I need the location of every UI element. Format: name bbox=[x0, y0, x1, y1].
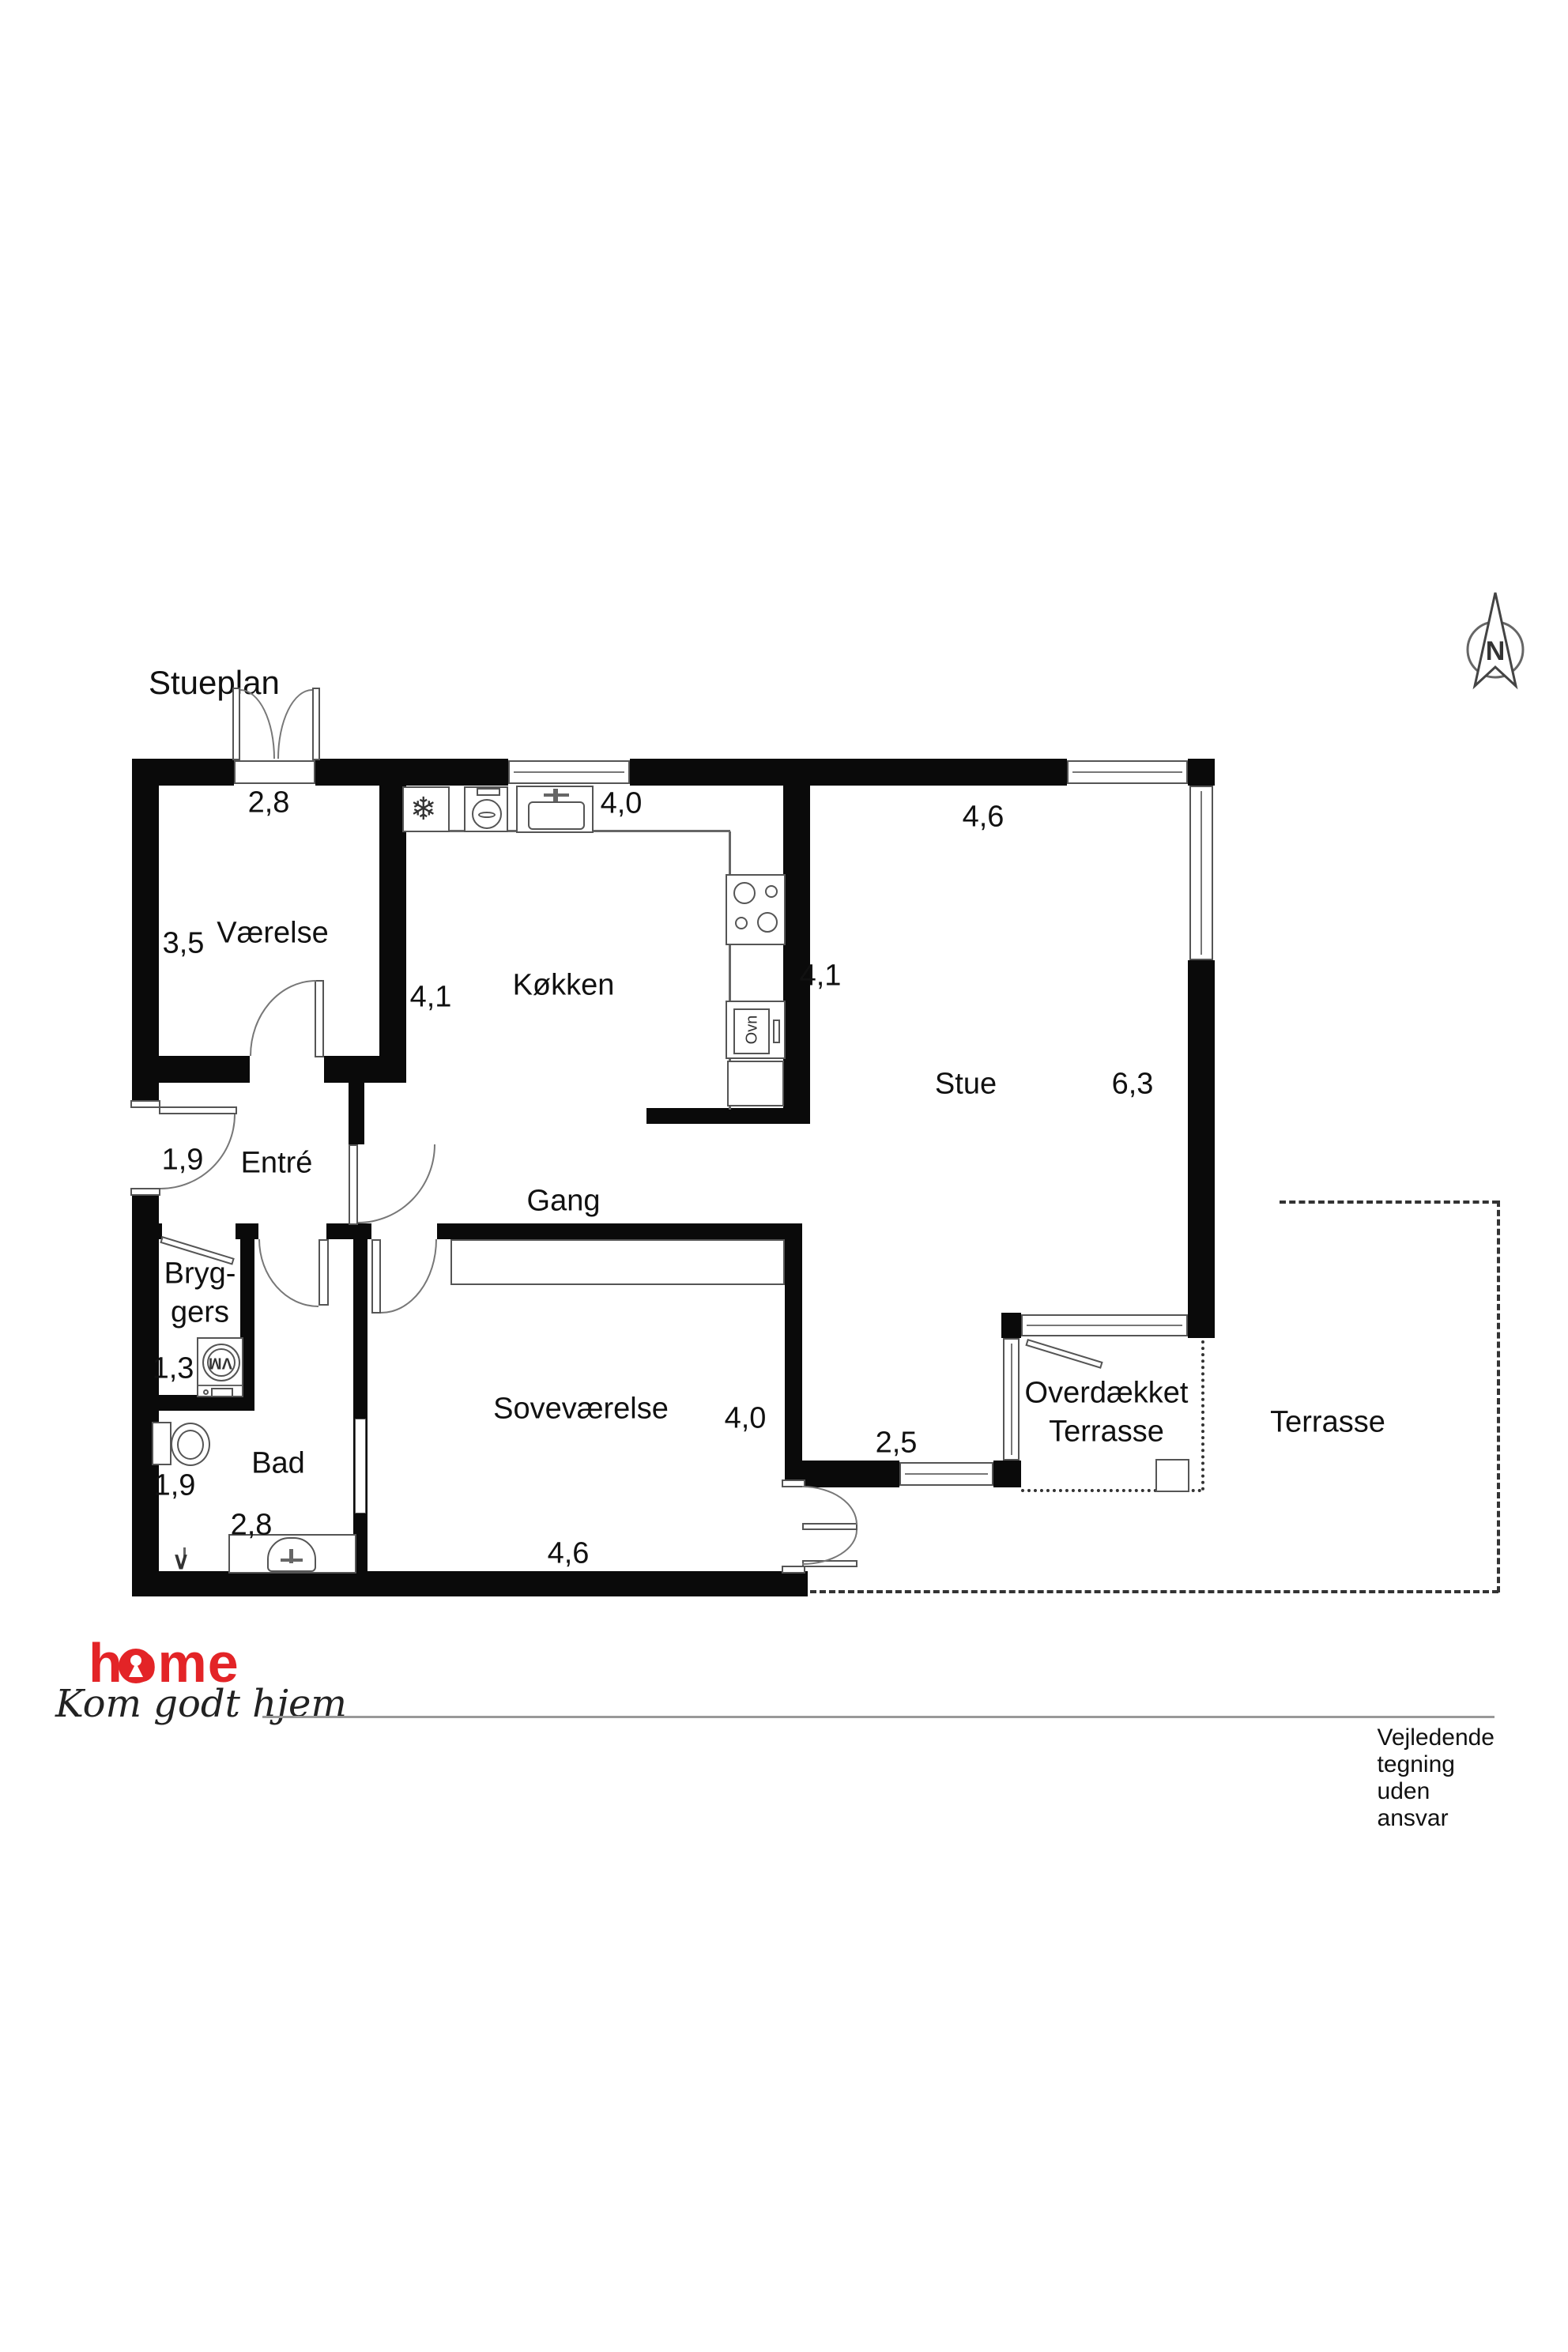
washing-machine: VM bbox=[197, 1337, 243, 1397]
room-label-overdaekket-2: Terrasse bbox=[1049, 1415, 1164, 1449]
washing-machine-knob bbox=[203, 1389, 209, 1395]
floor-drain-icon: ∨ bbox=[172, 1547, 190, 1575]
window-kitchen-top bbox=[508, 760, 630, 784]
front-door-gap bbox=[132, 1105, 159, 1193]
dim-sove-depth: 4,0 bbox=[725, 1402, 767, 1436]
room-label-vaerelse: Værelse bbox=[217, 917, 329, 951]
room-label-terrasse: Terrasse bbox=[1270, 1406, 1385, 1440]
bad-pocket-door bbox=[355, 1419, 366, 1513]
brand-tagline: Kom godt hjem bbox=[55, 1682, 347, 1726]
wall-gang-2 bbox=[236, 1223, 258, 1239]
terrace-door-leaf bbox=[1025, 1339, 1102, 1369]
oven: Ovn bbox=[726, 1001, 786, 1059]
wall-gang-1 bbox=[132, 1223, 162, 1239]
dim-bad-width: 1,9 bbox=[154, 1469, 196, 1503]
post-overdaekket-sw bbox=[993, 1461, 1021, 1487]
overdaekket-dotted-right bbox=[1201, 1340, 1204, 1491]
glass-door-stue-terrace bbox=[1021, 1314, 1188, 1336]
kitchen-counter-unit bbox=[727, 1061, 784, 1106]
page-title: Stueplan bbox=[149, 664, 280, 702]
dim-kokken-width: 4,0 bbox=[601, 787, 643, 821]
front-door-cap-bottom bbox=[130, 1188, 160, 1196]
toilet-tank bbox=[152, 1422, 171, 1465]
sink-faucet-bar bbox=[544, 793, 569, 797]
sove-door-arc bbox=[381, 1239, 437, 1314]
floorplan-page: Stueplan N bbox=[0, 0, 1568, 2352]
dim-entre-width: 1,9 bbox=[162, 1144, 204, 1178]
room-label-kokken: Køkken bbox=[513, 969, 615, 1003]
sink-basin bbox=[528, 801, 585, 830]
wall-top-right-corner bbox=[1188, 759, 1215, 786]
room-label-bryggers-2: gers bbox=[171, 1296, 229, 1330]
post-overdaekket-nw bbox=[1001, 1313, 1021, 1338]
window-passage bbox=[899, 1462, 993, 1486]
overdaekket-corner-post bbox=[1155, 1459, 1189, 1492]
north-label: N bbox=[1486, 636, 1506, 666]
vaerelse-door-arc bbox=[250, 980, 316, 1056]
basin-faucet-bar bbox=[281, 1559, 303, 1562]
dim-vaerelse-depth: 3,5 bbox=[163, 927, 205, 961]
dishwasher-pan-icon bbox=[478, 812, 496, 818]
double-door-arc-right bbox=[277, 689, 312, 759]
sove-door-leaf bbox=[371, 1239, 381, 1314]
wall-kitchen-stue-divider bbox=[783, 786, 810, 1124]
dishwasher bbox=[464, 786, 508, 832]
fridge: ❄ bbox=[402, 786, 450, 832]
burner-large-1 bbox=[733, 882, 756, 904]
room-label-sovevaerelse: Soveværelse bbox=[493, 1393, 669, 1427]
wall-gang-4 bbox=[437, 1223, 802, 1239]
dishwasher-panel bbox=[477, 788, 500, 796]
double-door-threshold bbox=[234, 760, 315, 784]
washing-machine-panel-line bbox=[198, 1385, 242, 1386]
footer-rule bbox=[262, 1716, 1494, 1718]
dim-passage-width: 2,5 bbox=[876, 1427, 918, 1461]
wall-vaerelse-bottom-right bbox=[324, 1056, 406, 1083]
bad-door-leaf bbox=[318, 1239, 329, 1306]
dim-kokken-depth-left: 4,1 bbox=[410, 981, 452, 1015]
north-compass-icon: N bbox=[1456, 586, 1535, 697]
window-stue-right bbox=[1189, 786, 1213, 960]
kitchen-sink bbox=[516, 786, 594, 833]
oven-label: Ovn bbox=[744, 1016, 762, 1045]
glass-overdaekket-left bbox=[1003, 1338, 1020, 1461]
washing-machine-detergent bbox=[211, 1388, 233, 1397]
room-label-bad: Bad bbox=[251, 1447, 305, 1481]
terrasse-dashed-top bbox=[1280, 1200, 1498, 1204]
front-door-cap-top bbox=[130, 1100, 160, 1108]
wall-left-top bbox=[132, 759, 159, 1106]
dim-bad-depth: 2,8 bbox=[231, 1509, 273, 1543]
washing-machine-label: VM bbox=[209, 1354, 232, 1372]
wall-left-bottom bbox=[132, 1191, 159, 1596]
burner-small-2 bbox=[735, 917, 748, 929]
window-stue-top bbox=[1067, 760, 1188, 784]
double-door-leaf-left bbox=[232, 688, 240, 760]
terrasse-dashed-bottom bbox=[810, 1590, 1498, 1593]
wall-sove-right bbox=[785, 1223, 802, 1486]
room-label-stue: Stue bbox=[935, 1068, 997, 1102]
dim-bryggers-width: 1,3 bbox=[153, 1352, 194, 1386]
wall-right-stue-end bbox=[1188, 1313, 1215, 1338]
stove-cooktop bbox=[726, 874, 786, 945]
wall-top-3 bbox=[630, 759, 1067, 786]
wall-bryggers-bottom bbox=[132, 1395, 240, 1411]
wall-bottom bbox=[132, 1571, 808, 1596]
dim-vaerelse-width: 2,8 bbox=[248, 786, 290, 820]
burner-small-1 bbox=[765, 885, 778, 898]
wall-kitchen-bottom bbox=[646, 1108, 810, 1124]
entre-door-leaf bbox=[349, 1144, 358, 1225]
bad-door-arc bbox=[258, 1239, 318, 1307]
entre-door-arc bbox=[358, 1144, 435, 1223]
wall-vaerelse-bottom-left bbox=[132, 1056, 250, 1083]
room-label-entre: Entré bbox=[241, 1147, 313, 1181]
dim-sove-width: 4,6 bbox=[548, 1537, 590, 1571]
toilet-bowl-inner bbox=[177, 1430, 204, 1460]
room-label-gang: Gang bbox=[527, 1185, 601, 1219]
burner-large-2 bbox=[757, 912, 778, 933]
oven-handle bbox=[773, 1020, 780, 1043]
dim-kokken-depth-right: 4,1 bbox=[800, 959, 842, 993]
footer-disclaimer: Vejledende tegning uden ansvar bbox=[1378, 1724, 1494, 1832]
brand-keyhole-triangle-icon bbox=[129, 1663, 143, 1677]
wall-right-stue bbox=[1188, 960, 1215, 1313]
dim-stue-width: 4,6 bbox=[963, 801, 1004, 835]
double-door-leaf-right bbox=[312, 688, 320, 760]
front-door-leaf bbox=[159, 1106, 237, 1114]
room-label-bryggers-1: Bryg- bbox=[164, 1257, 236, 1291]
room-label-overdaekket-1: Overdækket bbox=[1025, 1377, 1189, 1411]
wall-entre-divider bbox=[349, 1083, 364, 1144]
terrasse-dashed-right bbox=[1497, 1200, 1500, 1592]
fridge-snowflake-icon: ❄ bbox=[410, 791, 437, 827]
wardrobe bbox=[450, 1239, 785, 1285]
dim-stue-depth: 6,3 bbox=[1112, 1068, 1154, 1102]
wall-top-2 bbox=[315, 759, 508, 786]
french-door-arc-top bbox=[802, 1486, 857, 1525]
